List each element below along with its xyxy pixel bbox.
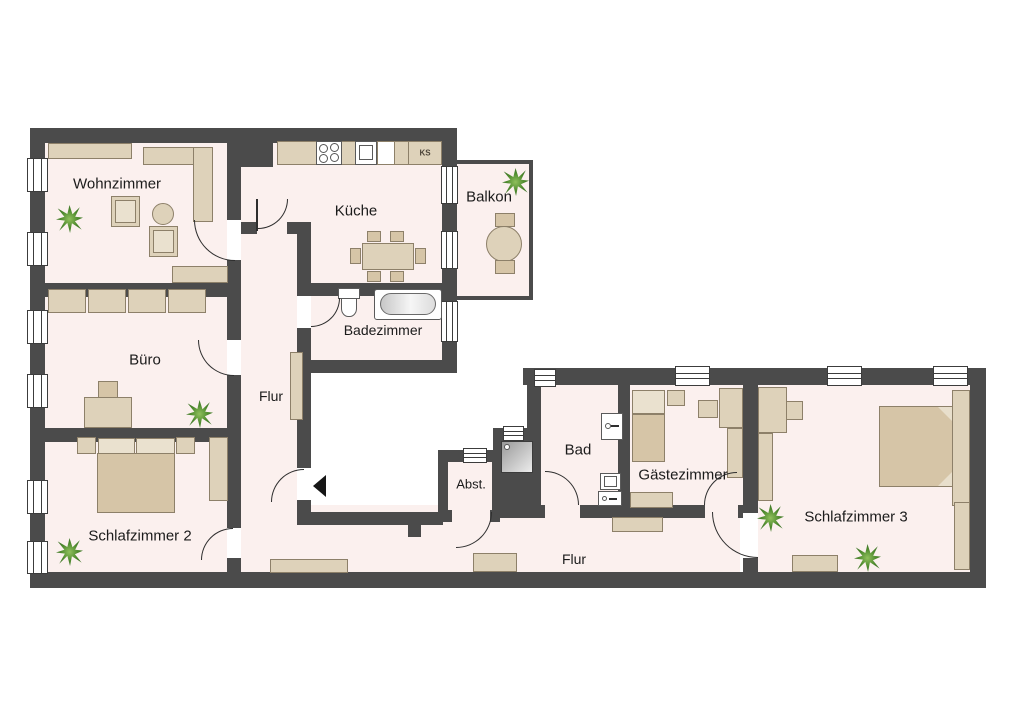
wall-segment xyxy=(743,368,758,513)
shelf xyxy=(128,289,166,313)
window xyxy=(27,158,48,192)
dining-chair xyxy=(390,231,404,242)
balcony-chair xyxy=(495,260,515,274)
kitchen-counter xyxy=(277,141,418,165)
toilet xyxy=(341,298,357,317)
nightstand xyxy=(176,437,195,454)
wall-segment xyxy=(227,143,241,220)
dining-chair xyxy=(390,271,404,282)
wall-segment xyxy=(287,222,311,234)
kitchen-sink-basin xyxy=(359,145,373,160)
sideboard xyxy=(473,553,517,572)
armchair-seat xyxy=(153,230,174,253)
window xyxy=(827,366,862,386)
sideboard xyxy=(270,559,348,573)
wardrobe xyxy=(954,502,970,570)
pillow xyxy=(98,438,135,454)
stove-burner xyxy=(330,153,339,162)
desk-chair xyxy=(98,381,118,398)
dresser xyxy=(786,401,803,420)
wall-segment xyxy=(227,558,241,572)
sideboard xyxy=(630,492,673,508)
balcony-wall xyxy=(453,296,533,300)
wardrobe xyxy=(209,437,228,501)
wall-segment xyxy=(30,572,986,588)
wall-segment xyxy=(442,202,457,233)
room-label-gaestezimmer: Gästezimmer xyxy=(638,467,727,484)
dryer-icon xyxy=(609,498,617,500)
dining-chair xyxy=(350,248,361,264)
wall-segment xyxy=(493,505,545,518)
sideboard xyxy=(612,517,663,532)
room-label-flur2: Flur xyxy=(562,551,586,567)
window xyxy=(503,426,524,441)
washing-machine-icon xyxy=(611,425,619,427)
sideboard xyxy=(792,555,838,572)
desk xyxy=(698,400,718,418)
stove-burner xyxy=(330,143,339,152)
pillow xyxy=(632,390,665,414)
wall-segment xyxy=(241,143,273,167)
dining-table xyxy=(362,243,414,270)
wall-segment xyxy=(297,512,443,525)
wardrobe xyxy=(719,388,743,428)
wall-segment xyxy=(970,368,986,588)
stove-burner xyxy=(319,154,328,163)
pillow xyxy=(136,438,175,454)
window xyxy=(27,232,48,266)
dining-chair xyxy=(367,271,381,282)
bathtub-basin xyxy=(380,293,436,315)
room-label-schlafzimmer2: Schlafzimmer 2 xyxy=(88,528,191,545)
shelf xyxy=(168,289,206,313)
balcony-table xyxy=(486,226,522,262)
wall-segment xyxy=(30,128,45,588)
nightstand xyxy=(667,390,685,406)
room-label-wohnzimmer: Wohnzimmer xyxy=(73,176,161,193)
room-label-badezimmer: Badezimmer xyxy=(344,322,423,338)
dryer-icon xyxy=(602,496,607,501)
fridge-label: KS xyxy=(419,149,430,158)
sofa xyxy=(193,147,213,222)
sideboard xyxy=(48,143,132,159)
room-label-balkon: Balkon xyxy=(466,189,512,206)
window xyxy=(27,480,48,514)
window xyxy=(441,301,458,342)
shelf xyxy=(48,289,86,313)
window xyxy=(441,231,458,269)
room-label-schlafzimmer3: Schlafzimmer 3 xyxy=(804,509,907,526)
bed xyxy=(97,453,175,513)
wall-segment xyxy=(442,340,457,362)
window xyxy=(441,166,458,204)
dining-chair xyxy=(415,248,426,264)
window xyxy=(933,366,968,386)
window xyxy=(27,541,48,574)
wall-segment xyxy=(408,525,421,537)
room-label-abstellraum: Abst. xyxy=(456,477,486,492)
floor-plan: Wohnzimmer Küche Balkon Badezimmer Büro … xyxy=(0,0,1024,724)
wall-segment xyxy=(227,375,241,528)
window xyxy=(463,448,487,463)
wardrobe xyxy=(758,387,787,433)
window xyxy=(27,374,48,408)
dining-chair xyxy=(367,231,381,242)
balcony-chair xyxy=(495,213,515,227)
window xyxy=(27,310,48,344)
window xyxy=(675,366,710,386)
balcony-wall xyxy=(453,160,533,164)
room-label-buero: Büro xyxy=(129,352,161,369)
headboard xyxy=(952,390,970,506)
wall-segment xyxy=(743,558,758,575)
stove-burner xyxy=(319,144,328,153)
room-label-flur: Flur xyxy=(259,388,283,404)
coffee-table xyxy=(152,203,174,225)
nightstand xyxy=(77,437,96,454)
bed xyxy=(632,414,665,462)
shower-drain xyxy=(504,444,510,450)
counter-section xyxy=(377,141,395,165)
bathroom-sink-basin xyxy=(604,476,617,487)
balcony-wall xyxy=(529,160,533,300)
desk xyxy=(84,397,132,428)
entrance-arrow xyxy=(313,475,326,497)
sideboard xyxy=(172,266,228,283)
wardrobe xyxy=(727,428,743,478)
shelf xyxy=(88,289,126,313)
room-label-kueche: Küche xyxy=(335,203,378,220)
wall-segment xyxy=(442,143,457,168)
room-label-bad: Bad xyxy=(565,442,592,459)
wardrobe xyxy=(290,352,303,420)
window xyxy=(534,369,556,387)
armchair-seat xyxy=(115,200,136,223)
wall-segment xyxy=(227,260,241,340)
wardrobe xyxy=(758,433,773,501)
wall-segment xyxy=(241,222,257,234)
wall-segment xyxy=(297,360,457,373)
